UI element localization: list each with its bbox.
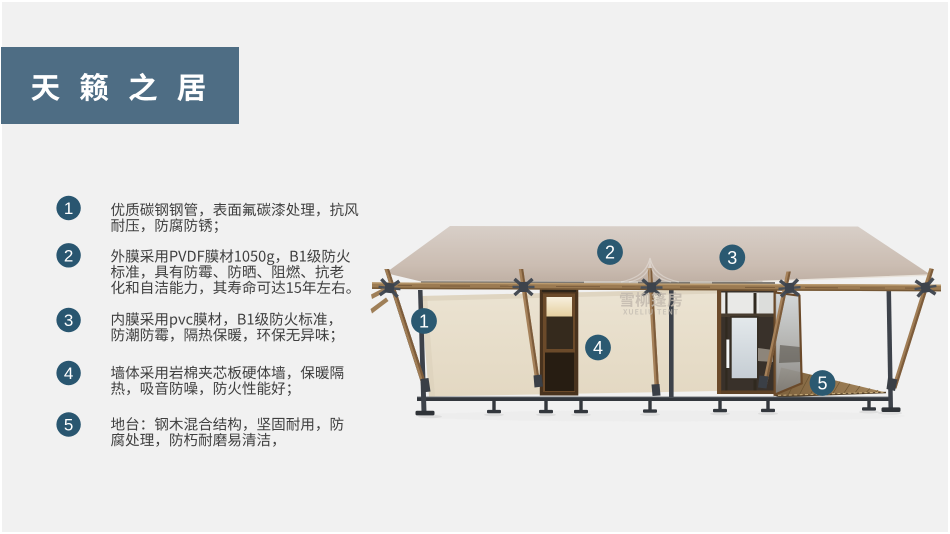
svg-text:4: 4	[593, 338, 603, 358]
svg-text:3: 3	[727, 248, 737, 268]
svg-text:2: 2	[605, 243, 615, 263]
svg-text:4: 4	[64, 364, 73, 383]
svg-text:1: 1	[419, 312, 429, 332]
svg-text:2: 2	[64, 246, 73, 265]
svg-text:3: 3	[64, 311, 73, 330]
svg-text:1: 1	[64, 199, 73, 218]
svg-text:5: 5	[64, 416, 73, 435]
svg-text:5: 5	[817, 374, 827, 394]
